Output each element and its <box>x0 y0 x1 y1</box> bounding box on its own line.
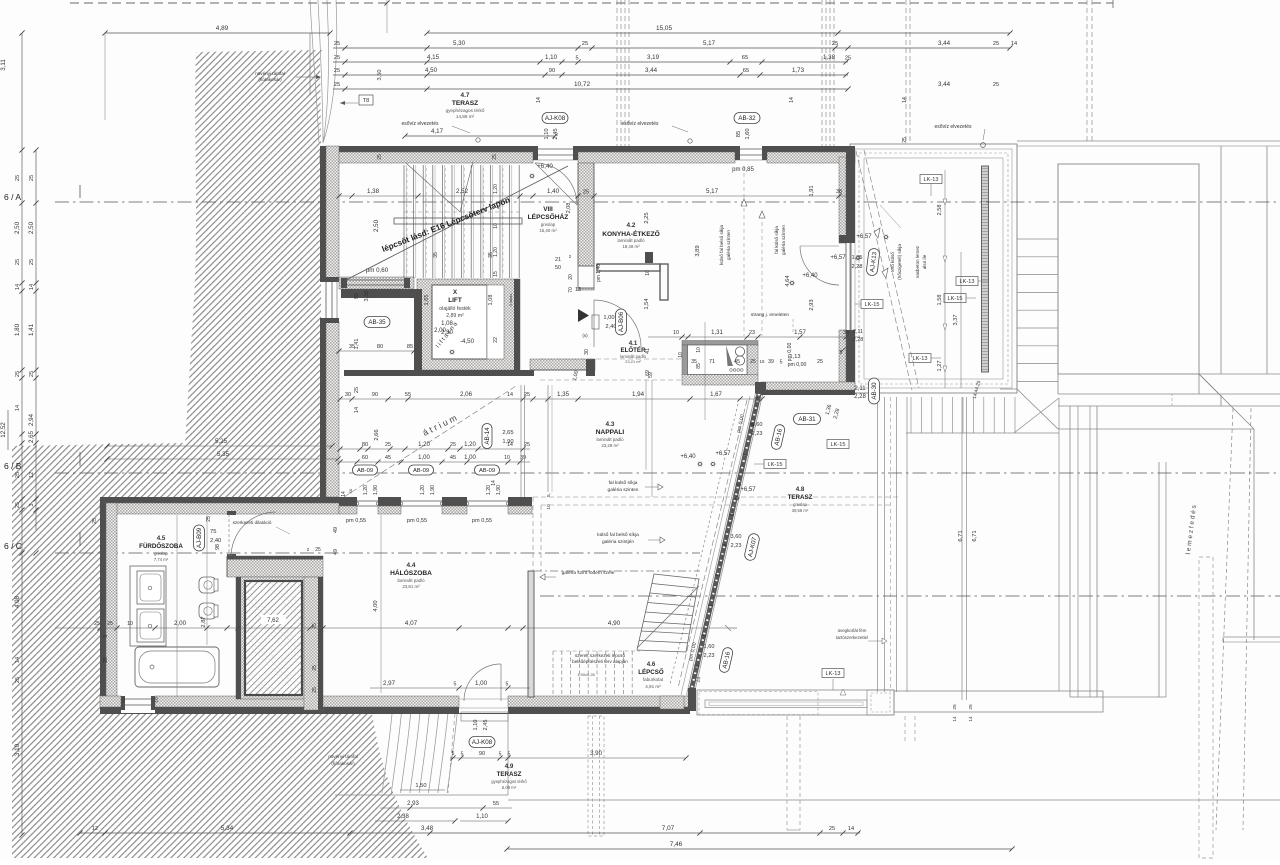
svg-text:1,91: 1,91 <box>809 185 815 196</box>
svg-text:3,11: 3,11 <box>0 59 7 71</box>
svg-text:5: 5 <box>461 752 464 758</box>
svg-text:LK-13: LK-13 <box>913 356 928 362</box>
svg-text:5: 5 <box>506 682 509 688</box>
svg-text:25: 25 <box>15 371 21 377</box>
svg-text:pm 0,55: pm 0,55 <box>472 518 492 524</box>
svg-text:55: 55 <box>493 801 499 807</box>
svg-text:23,81 m²: 23,81 m² <box>402 584 420 589</box>
svg-text:(fiórakosár): (fiórakosár) <box>258 77 282 82</box>
svg-text:2,58: 2,58 <box>937 205 943 216</box>
svg-text:1,38: 1,38 <box>367 188 380 195</box>
svg-text:galéria szint födém széle: galéria szint födém széle <box>562 570 615 576</box>
svg-text:AJ-B06: AJ-B06 <box>618 311 625 332</box>
svg-text:LÉPCSŐ: LÉPCSŐ <box>638 668 664 676</box>
svg-text:TERASZ: TERASZ <box>788 494 813 501</box>
svg-text:AB-09: AB-09 <box>479 468 495 474</box>
svg-text:növényi támfal: növényi támfal <box>328 754 358 759</box>
svg-text:4,07: 4,07 <box>405 620 418 627</box>
svg-text:23,28 m²: 23,28 m² <box>601 443 619 448</box>
svg-text:2,28: 2,28 <box>854 394 866 400</box>
svg-text:szerkezeti dilatáció: szerkezeti dilatáció <box>233 520 272 525</box>
svg-text:80: 80 <box>377 344 383 350</box>
svg-text:2,94: 2,94 <box>28 413 35 426</box>
svg-text:5: 5 <box>499 752 502 758</box>
svg-text:gyephézagos térkő: gyephézagos térkő <box>491 779 527 784</box>
svg-text:25: 25 <box>206 516 212 522</box>
svg-text:pm 1,40: pm 1,40 <box>596 264 602 282</box>
svg-text:2,40: 2,40 <box>210 538 221 544</box>
svg-text:1,27: 1,27 <box>937 361 943 372</box>
svg-text:1,54: 1,54 <box>644 298 650 310</box>
svg-text:14: 14 <box>15 657 21 663</box>
svg-text:1,31: 1,31 <box>711 330 723 336</box>
svg-text:25: 25 <box>817 359 823 365</box>
svg-text:60: 60 <box>362 455 368 461</box>
svg-text:1,00: 1,00 <box>475 680 488 687</box>
svg-text:14: 14 <box>848 826 854 832</box>
svg-text:23: 23 <box>749 330 755 336</box>
svg-text:2,23: 2,23 <box>731 543 742 549</box>
svg-text:25: 25 <box>492 154 498 160</box>
svg-text:25: 25 <box>968 704 974 710</box>
svg-text:AB-31: AB-31 <box>798 416 816 423</box>
svg-text:18,48 m²: 18,48 m² <box>622 244 640 249</box>
svg-text:49: 49 <box>333 527 339 533</box>
svg-text:90: 90 <box>549 68 555 74</box>
svg-text:14: 14 <box>536 97 542 103</box>
svg-text:+6,57: +6,57 <box>830 255 846 261</box>
svg-text:+6,40: +6,40 <box>802 273 818 279</box>
svg-text:2,28: 2,28 <box>852 264 863 270</box>
svg-text:25: 25 <box>29 371 35 377</box>
svg-text:25: 25 <box>524 442 530 448</box>
svg-text:AJ-B09: AJ-B09 <box>196 527 203 548</box>
svg-text:4.2: 4.2 <box>627 222 636 229</box>
svg-text:1,38: 1,38 <box>823 54 836 61</box>
svg-text:vasbeton lemez: vasbeton lemez <box>915 245 920 278</box>
svg-text:14: 14 <box>1011 41 1017 47</box>
svg-text:85: 85 <box>696 363 702 369</box>
svg-text:pm 0,00: pm 0,00 <box>787 343 793 362</box>
svg-text:1,73: 1,73 <box>792 67 805 74</box>
svg-text:25: 25 <box>29 175 35 181</box>
svg-text:25: 25 <box>450 442 456 448</box>
svg-text:pm 0,55: pm 0,55 <box>407 518 427 524</box>
svg-text:25: 25 <box>334 55 340 61</box>
svg-text:NAPPALI: NAPPALI <box>596 429 625 436</box>
svg-text:3,36: 3,36 <box>364 291 370 302</box>
svg-text:1,00: 1,00 <box>418 455 430 461</box>
svg-text:esővíz elvezetés: esővíz elvezetés <box>402 121 439 127</box>
svg-text:4,08: 4,08 <box>14 595 21 608</box>
svg-text:70: 70 <box>568 287 574 293</box>
svg-text:fal külső síkja: fal külső síkja <box>609 480 638 486</box>
svg-text:15,40 m²: 15,40 m² <box>539 228 557 233</box>
svg-text:2,06: 2,06 <box>460 391 473 398</box>
svg-text:2,50: 2,50 <box>28 221 35 234</box>
svg-text:2,50: 2,50 <box>14 221 21 234</box>
svg-text:14: 14 <box>968 716 974 722</box>
svg-text:10: 10 <box>696 347 702 353</box>
svg-text:12: 12 <box>29 472 35 478</box>
svg-text:1,67: 1,67 <box>710 392 722 398</box>
svg-text:AJ-K08: AJ-K08 <box>472 739 493 746</box>
svg-text:13: 13 <box>575 287 581 293</box>
svg-text:22: 22 <box>493 337 499 343</box>
svg-text:2,93: 2,93 <box>809 299 815 310</box>
svg-text:10: 10 <box>673 330 679 336</box>
svg-text:greslap: greslap <box>541 222 556 227</box>
svg-text:1,60: 1,60 <box>752 422 763 428</box>
svg-text:2,08: 2,08 <box>566 203 572 214</box>
svg-text:fal külső síkja: fal külső síkja <box>774 226 779 254</box>
svg-text:LK-13: LK-13 <box>924 177 939 183</box>
svg-text:5: 5 <box>575 56 578 62</box>
svg-text:1,08: 1,08 <box>441 321 453 327</box>
svg-text:2,23: 2,23 <box>752 431 763 437</box>
svg-text:2,50: 2,50 <box>373 219 380 232</box>
svg-text:1,50x0,28: 1,50x0,28 <box>577 672 595 677</box>
svg-text:1,10: 1,10 <box>473 720 479 731</box>
svg-text:2,30: 2,30 <box>441 330 453 336</box>
svg-text:+6,57: +6,57 <box>856 234 872 240</box>
svg-text:+6,57: +6,57 <box>740 487 756 493</box>
svg-text:23,21 m²: 23,21 m² <box>625 359 641 364</box>
svg-text:belsőépítészeti terv alapján: belsőépítészeti terv alapján <box>572 659 628 664</box>
svg-text:2,87: 2,87 <box>201 617 207 628</box>
svg-text:14: 14 <box>507 392 513 398</box>
svg-text:1,60: 1,60 <box>745 128 751 139</box>
svg-text:15: 15 <box>493 271 499 277</box>
svg-text:30: 30 <box>345 392 351 398</box>
svg-text:10: 10 <box>121 697 127 703</box>
svg-text:25: 25 <box>15 175 21 181</box>
svg-text:14,88 m²: 14,88 m² <box>456 114 475 119</box>
svg-text:3,44: 3,44 <box>938 40 951 47</box>
svg-text:1,60: 1,60 <box>704 644 715 650</box>
svg-text:LK-15: LK-15 <box>948 296 963 302</box>
svg-text:25: 25 <box>582 41 588 47</box>
svg-text:5: 5 <box>780 360 783 366</box>
svg-text:4.9: 4.9 <box>505 763 514 770</box>
svg-text:15,05: 15,05 <box>656 25 672 32</box>
svg-text:laminált padló: laminált padló <box>596 437 624 442</box>
svg-text:növényi támfal: növényi támfal <box>255 71 285 76</box>
svg-text:12: 12 <box>92 826 98 832</box>
svg-text:4,89: 4,89 <box>216 25 229 32</box>
svg-text:AB-09: AB-09 <box>357 468 373 474</box>
svg-text:5,35: 5,35 <box>217 451 230 458</box>
svg-text:strang j. emeleten: strang j. emeleten <box>751 312 789 318</box>
svg-text:laminált padló: laminált padló <box>397 578 425 583</box>
svg-text:50: 50 <box>555 265 561 271</box>
svg-text:1,90: 1,90 <box>430 485 436 495</box>
svg-text:6 / A: 6 / A <box>4 192 21 202</box>
svg-text:59: 59 <box>648 372 654 378</box>
svg-text:25: 25 <box>15 677 21 683</box>
svg-text:4,90: 4,90 <box>608 620 621 627</box>
svg-text:25: 25 <box>952 704 958 710</box>
svg-text:galéria színten: galéria színten <box>726 230 731 260</box>
svg-text:14: 14 <box>952 716 958 722</box>
svg-text:25: 25 <box>15 472 21 478</box>
svg-text:14: 14 <box>15 284 21 290</box>
svg-text:25: 25 <box>993 82 999 88</box>
svg-text:25: 25 <box>334 68 340 74</box>
svg-text:1,10: 1,10 <box>545 54 558 61</box>
svg-text:4,64: 4,64 <box>785 275 791 287</box>
svg-text:7,62: 7,62 <box>267 618 279 624</box>
svg-text:10: 10 <box>645 270 651 276</box>
svg-text:39: 39 <box>768 359 774 365</box>
svg-text:10,72: 10,72 <box>574 81 590 88</box>
svg-text:(s): (s) <box>582 333 588 338</box>
svg-text:4.5: 4.5 <box>157 535 166 542</box>
svg-text:45: 45 <box>450 455 456 461</box>
svg-text:4.7: 4.7 <box>461 92 470 99</box>
svg-text:1,57: 1,57 <box>794 330 806 336</box>
svg-text:5: 5 <box>103 634 109 637</box>
svg-text:2,40: 2,40 <box>605 324 616 330</box>
svg-text:90: 90 <box>372 392 378 398</box>
svg-text:3,60: 3,60 <box>731 534 742 540</box>
svg-text:2,93: 2,93 <box>407 801 419 807</box>
svg-text:pm 0,55: pm 0,55 <box>346 518 366 524</box>
svg-text:esővíz elvezetés: esővíz elvezetés <box>935 124 972 130</box>
svg-text:90: 90 <box>354 293 360 299</box>
svg-text:1,58: 1,58 <box>937 295 943 306</box>
svg-text:10: 10 <box>127 621 133 627</box>
svg-text:14: 14 <box>29 284 35 290</box>
svg-text:üvegkorlát fém: üvegkorlát fém <box>838 628 867 633</box>
svg-text:4,50: 4,50 <box>425 67 438 74</box>
svg-text:6,09 m²: 6,09 m² <box>502 785 517 790</box>
svg-text:külső fal belső síkja: külső fal belső síkja <box>597 532 639 538</box>
svg-text:14: 14 <box>341 491 347 497</box>
svg-text:1,90: 1,90 <box>373 485 379 495</box>
svg-text:10: 10 <box>546 504 552 510</box>
svg-text:1,41: 1,41 <box>28 323 35 336</box>
svg-text:+6,40: +6,40 <box>680 454 696 460</box>
svg-text:55: 55 <box>405 392 411 398</box>
svg-text:25: 25 <box>312 687 318 693</box>
svg-text:AB-32: AB-32 <box>738 115 756 122</box>
svg-text:25: 25 <box>583 190 589 196</box>
svg-text:25: 25 <box>385 442 391 448</box>
svg-text:25: 25 <box>29 259 35 265</box>
svg-text:galéria szinten: galéria szinten <box>608 487 639 493</box>
svg-text:külső fal belső síkja: külső fal belső síkja <box>719 225 724 265</box>
svg-text:14: 14 <box>15 405 21 411</box>
svg-text:galéria színten: galéria színten <box>781 225 786 255</box>
svg-text:1,80: 1,80 <box>14 323 21 336</box>
svg-text:laminált padló: laminált padló <box>617 238 645 243</box>
svg-text:21: 21 <box>555 257 561 263</box>
svg-text:4.1: 4.1 <box>629 340 638 347</box>
svg-text:5: 5 <box>454 682 457 688</box>
svg-text:FÜRDŐSZOBA: FÜRDŐSZOBA <box>139 543 183 550</box>
svg-text:12,52: 12,52 <box>0 422 7 438</box>
svg-text:4,17: 4,17 <box>431 128 444 135</box>
svg-text:LK-13: LK-13 <box>960 279 975 285</box>
svg-text:faburkolat: faburkolat <box>643 677 664 682</box>
svg-text:71: 71 <box>709 359 715 365</box>
svg-text:25: 25 <box>92 518 98 524</box>
svg-text:KONYHA-ÉTKEZŐ: KONYHA-ÉTKEZŐ <box>602 229 660 238</box>
svg-text:3,10: 3,10 <box>14 743 21 756</box>
svg-text:35: 35 <box>349 344 355 350</box>
svg-text:1,00: 1,00 <box>603 315 614 321</box>
svg-text:szerelt szerkezeti lépcső: szerelt szerkezeti lépcső <box>575 653 625 658</box>
svg-text:2,45: 2,45 <box>553 128 559 139</box>
svg-text:LIFT: LIFT <box>448 297 462 304</box>
svg-text:65: 65 <box>742 55 748 61</box>
svg-text:25: 25 <box>902 137 908 143</box>
svg-text:2,65: 2,65 <box>28 430 35 443</box>
svg-text:2,45: 2,45 <box>483 720 489 731</box>
svg-text:14: 14 <box>902 97 908 103</box>
svg-text:45: 45 <box>385 455 391 461</box>
svg-text:tető külső: tető külső <box>890 252 895 272</box>
svg-text:3,90: 3,90 <box>590 750 603 757</box>
svg-text:greslap: greslap <box>793 502 807 507</box>
svg-text:2,97: 2,97 <box>383 680 396 687</box>
svg-text:25: 25 <box>107 621 113 627</box>
svg-text:41: 41 <box>645 348 651 354</box>
svg-text:2,11: 2,11 <box>853 329 863 335</box>
svg-text:85: 85 <box>736 131 742 137</box>
svg-text:7,46: 7,46 <box>670 841 683 848</box>
svg-text:4.8: 4.8 <box>796 486 805 493</box>
svg-text:25: 25 <box>832 41 838 47</box>
svg-text:1,05: 1,05 <box>852 255 863 261</box>
svg-text:75: 75 <box>210 529 216 535</box>
svg-text:AB-30: AB-30 <box>871 382 878 400</box>
svg-text:1,50: 1,50 <box>415 783 426 789</box>
svg-text:esővíz elvezetés: esővíz elvezetés <box>622 121 659 127</box>
svg-text:4,91 m²: 4,91 m² <box>645 684 661 689</box>
svg-text:2,11: 2,11 <box>854 386 866 392</box>
svg-text:LK-13: LK-13 <box>826 671 841 677</box>
svg-text:25: 25 <box>829 826 835 832</box>
svg-text:1,00: 1,00 <box>464 455 476 461</box>
svg-text:10: 10 <box>154 697 160 703</box>
svg-text:LK-15: LK-15 <box>768 462 783 468</box>
svg-text:1,65: 1,65 <box>424 295 430 306</box>
svg-text:AJ-K08: AJ-K08 <box>545 115 566 122</box>
svg-text:TERASZ: TERASZ <box>497 771 522 778</box>
svg-text:4.3: 4.3 <box>606 421 615 428</box>
svg-text:4,15: 4,15 <box>427 54 440 61</box>
svg-text:38: 38 <box>843 330 849 336</box>
svg-text:alsó íle: alsó íle <box>922 254 927 269</box>
svg-text:4.6: 4.6 <box>647 661 656 668</box>
svg-text:3 lakás: 3 lakás <box>508 294 513 307</box>
svg-text:2,65: 2,65 <box>502 430 513 436</box>
svg-text:7,07: 7,07 <box>662 825 675 832</box>
svg-text:1,20: 1,20 <box>363 485 369 495</box>
svg-text:AB-35: AB-35 <box>368 319 386 326</box>
svg-text:2,66: 2,66 <box>374 429 380 440</box>
svg-text:38: 38 <box>836 189 842 195</box>
svg-text:+6,57: +6,57 <box>715 451 731 457</box>
svg-text:5,30: 5,30 <box>453 40 466 47</box>
svg-text:T8: T8 <box>363 98 370 104</box>
svg-text:2,89 m²: 2,89 m² <box>446 313 464 319</box>
svg-text:85: 85 <box>407 344 413 350</box>
svg-text:1,40: 1,40 <box>547 188 560 195</box>
svg-text:25: 25 <box>524 392 530 398</box>
svg-text:25: 25 <box>94 621 100 627</box>
svg-text:AB-09: AB-09 <box>413 468 429 474</box>
svg-text:20: 20 <box>568 274 574 280</box>
svg-text:10: 10 <box>678 352 684 358</box>
svg-text:3,19: 3,19 <box>647 54 660 61</box>
svg-text:2,23: 2,23 <box>704 653 715 659</box>
svg-text:25: 25 <box>354 387 360 393</box>
svg-text:4.4: 4.4 <box>407 562 416 569</box>
svg-text:6,71: 6,71 <box>972 530 978 541</box>
svg-text:galéria szintjén: galéria szintjén <box>602 539 634 545</box>
svg-text:25: 25 <box>15 502 21 508</box>
svg-text:3,48: 3,48 <box>421 825 434 832</box>
svg-text:5: 5 <box>452 751 455 757</box>
svg-text:+6,40: +6,40 <box>537 163 553 170</box>
svg-text:25: 25 <box>312 665 318 671</box>
svg-text:TERASZ: TERASZ <box>452 100 478 107</box>
svg-text:25: 25 <box>15 259 21 265</box>
svg-text:2,52: 2,52 <box>456 188 469 195</box>
svg-text:14: 14 <box>491 480 497 486</box>
svg-text:25: 25 <box>845 56 851 62</box>
svg-text:ko: ko <box>348 488 353 493</box>
svg-text:greslap: greslap <box>154 551 168 556</box>
svg-text:25: 25 <box>334 82 340 88</box>
svg-text:LK-15: LK-15 <box>865 302 880 308</box>
svg-text:1,94: 1,94 <box>632 391 645 398</box>
svg-text:2,28: 2,28 <box>853 337 864 343</box>
svg-text:49: 49 <box>333 549 339 555</box>
svg-text:45: 45 <box>734 359 740 365</box>
svg-text:2,00: 2,00 <box>174 620 187 627</box>
svg-text:3,37: 3,37 <box>953 315 959 326</box>
svg-text:1,90: 1,90 <box>502 439 513 445</box>
svg-text:98: 98 <box>215 544 221 550</box>
svg-text:(hőszigetelt) síkja: (hőszigetelt) síkja <box>897 244 902 280</box>
svg-text:90: 90 <box>479 751 485 757</box>
svg-text:1,08: 1,08 <box>488 295 494 306</box>
svg-text:65: 65 <box>743 68 749 74</box>
svg-text:3: 3 <box>29 503 35 506</box>
svg-text:5,34: 5,34 <box>221 825 234 832</box>
svg-text:3,44: 3,44 <box>938 81 951 88</box>
svg-text:14: 14 <box>789 97 795 103</box>
svg-text:6 / C: 6 / C <box>4 541 22 551</box>
svg-text:6,71: 6,71 <box>958 530 964 541</box>
svg-text:(fiórakosár): (fiórakosár) <box>331 761 355 766</box>
svg-text:4,00: 4,00 <box>373 600 379 611</box>
svg-text:1,35: 1,35 <box>557 391 570 398</box>
svg-text:tartószerkezettel: tartószerkezettel <box>836 635 868 640</box>
svg-text:5,17: 5,17 <box>703 40 716 47</box>
svg-text:10: 10 <box>504 455 510 461</box>
svg-text:3,89: 3,89 <box>695 245 701 256</box>
svg-text:1,10: 1,10 <box>476 814 488 820</box>
svg-text:25: 25 <box>993 41 999 47</box>
svg-text:25: 25 <box>315 547 321 553</box>
svg-text:6 / B: 6 / B <box>4 461 22 471</box>
svg-text:7,74 m²: 7,74 m² <box>154 557 169 562</box>
